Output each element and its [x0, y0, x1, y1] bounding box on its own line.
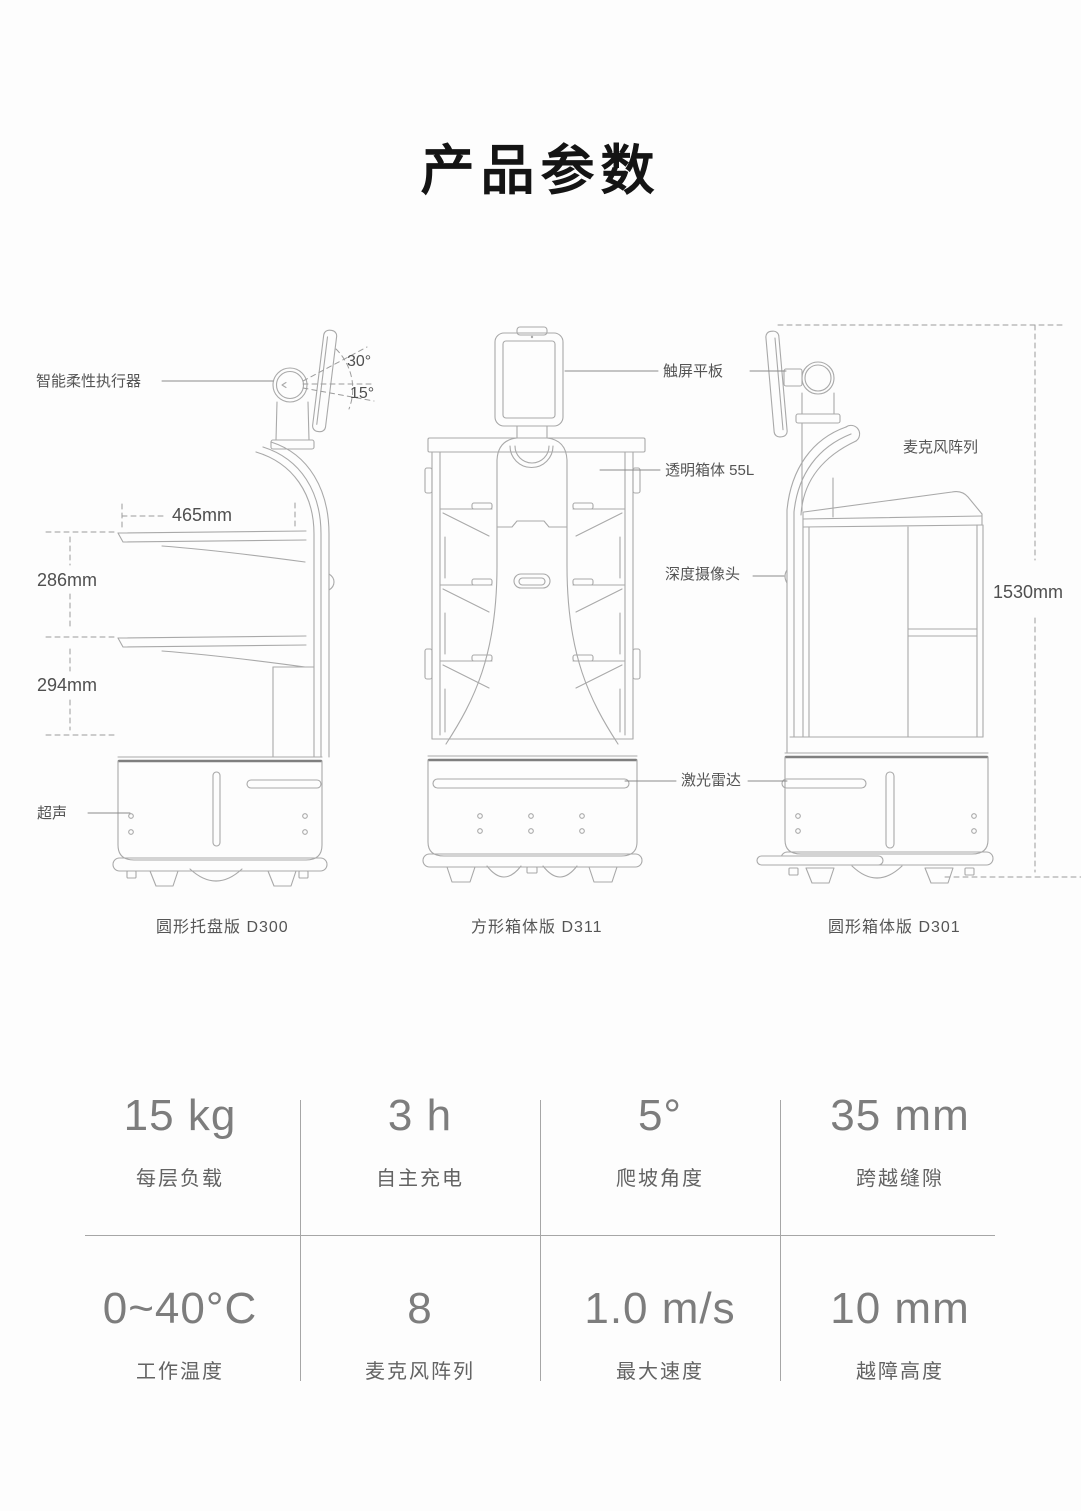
- label-tilt-up: 30°: [347, 352, 371, 371]
- caption-d311: 方形箱体版 D311: [471, 913, 603, 937]
- label-touchscreen: 触屏平板: [663, 363, 723, 381]
- base-chassis-icon: [423, 756, 642, 882]
- spec-item-gap-crossing: 35 mm 跨越缝隙: [780, 1092, 1020, 1191]
- spec-label: 越障高度: [780, 1355, 1020, 1384]
- tray-shelves-icon: [118, 531, 314, 757]
- spec-label: 最大速度: [540, 1355, 780, 1384]
- label-transparent-cabinet: 透明箱体 55L: [665, 462, 754, 480]
- label-mic-array: 麦克风阵列: [903, 439, 978, 457]
- spec-item-charging: 3 h 自主充电: [300, 1092, 540, 1191]
- caption-d301: 圆形箱体版 D301: [828, 913, 961, 937]
- spec-label: 爬坡角度: [540, 1162, 780, 1191]
- spec-label: 麦克风阵列: [300, 1355, 540, 1384]
- spec-value: 10 mm: [780, 1285, 1020, 1333]
- label-lidar: 激光雷达: [681, 772, 741, 790]
- spec-row-bottom: 0~40°C 工作温度 8 麦克风阵列 1.0 m/s 最大速度 10 mm 越…: [60, 1285, 1020, 1384]
- actuator-joint-icon: [802, 362, 834, 394]
- spec-item-mic-array: 8 麦克风阵列: [300, 1285, 540, 1384]
- center-column-icon: [446, 438, 618, 744]
- label-tray-gap-lower: 294mm: [37, 675, 97, 697]
- spec-value: 15 kg: [60, 1092, 300, 1140]
- label-tilt-down: 15°: [350, 384, 374, 403]
- spec-label: 自主充电: [300, 1162, 540, 1191]
- spec-item-temperature: 0~40°C 工作温度: [60, 1285, 300, 1384]
- spec-row-top: 15 kg 每层负载 3 h 自主充电 5° 爬坡角度 35 mm 跨越缝隙: [60, 1092, 1020, 1191]
- spec-item-obstacle-height: 10 mm 越障高度: [780, 1285, 1020, 1384]
- label-total-height: 1530mm: [993, 582, 1063, 604]
- robot-d311-drawing: [423, 327, 645, 882]
- label-ultrasonic: 超声: [37, 805, 67, 823]
- label-tray-width: 465mm: [172, 505, 232, 527]
- actuator-joint-icon: [273, 368, 307, 402]
- robot-d301-drawing: [757, 331, 993, 883]
- spec-value: 8: [300, 1285, 540, 1333]
- robot-d300-drawing: [113, 330, 337, 886]
- spec-label: 工作温度: [60, 1355, 300, 1384]
- base-chassis-icon: [757, 753, 993, 883]
- label-tray-gap-upper: 286mm: [37, 570, 97, 592]
- caption-d300: 圆形托盘版 D300: [156, 913, 289, 937]
- spec-label: 跨越缝隙: [780, 1162, 1020, 1191]
- spec-value: 35 mm: [780, 1092, 1020, 1140]
- callout-lines: [88, 371, 787, 813]
- spec-item-max-speed: 1.0 m/s 最大速度: [540, 1285, 780, 1384]
- spec-item-climb-angle: 5° 爬坡角度: [540, 1092, 780, 1191]
- spec-item-payload: 15 kg 每层负载: [60, 1092, 300, 1191]
- label-actuator: 智能柔性执行器: [36, 373, 141, 391]
- label-depth-camera: 深度摄像头: [665, 566, 740, 584]
- product-spec-page: 产品参数: [0, 0, 1081, 1511]
- spec-value: 0~40°C: [60, 1285, 300, 1333]
- round-cabinet-icon: [790, 492, 983, 737]
- screen-side-icon: [312, 330, 337, 433]
- spec-value: 3 h: [300, 1092, 540, 1140]
- spec-value: 1.0 m/s: [540, 1285, 780, 1333]
- spec-label: 每层负载: [60, 1162, 300, 1191]
- tablet-screen-icon: [495, 327, 563, 426]
- base-chassis-icon: [113, 757, 327, 886]
- spec-value: 5°: [540, 1092, 780, 1140]
- spec-divider-horizontal: [85, 1235, 995, 1236]
